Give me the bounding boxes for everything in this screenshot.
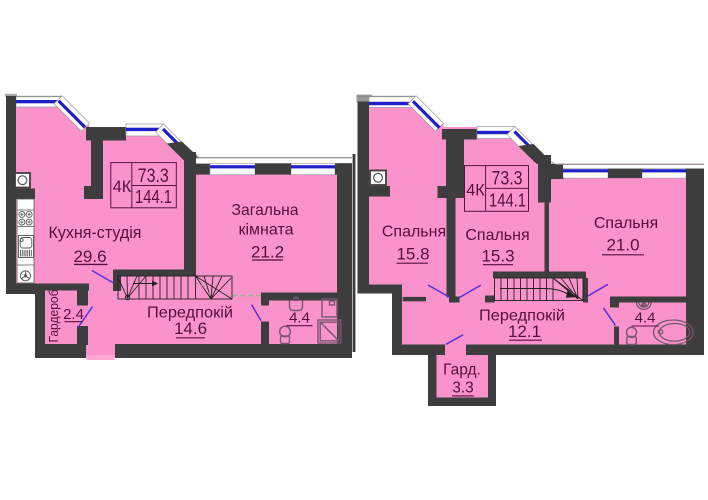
svg-text:73.3: 73.3: [138, 166, 169, 187]
svg-text:15.3: 15.3: [481, 246, 514, 265]
svg-text:4К: 4К: [113, 177, 132, 196]
svg-text:4.4: 4.4: [289, 310, 310, 327]
svg-text:Гард.: Гард.: [443, 362, 481, 379]
svg-text:Спальня: Спальня: [594, 215, 658, 232]
svg-text:12.1: 12.1: [508, 322, 541, 341]
svg-text:4К: 4К: [466, 181, 485, 200]
svg-text:15.8: 15.8: [396, 245, 429, 264]
svg-text:Загальна: Загальна: [232, 202, 299, 219]
svg-text:73.3: 73.3: [492, 169, 523, 190]
svg-text:144.1: 144.1: [135, 187, 172, 207]
svg-text:21.2: 21.2: [251, 243, 284, 262]
svg-text:29.6: 29.6: [73, 247, 106, 266]
svg-text:кімната: кімната: [239, 222, 294, 239]
svg-text:14.6: 14.6: [174, 319, 207, 338]
svg-text:4.4: 4.4: [635, 310, 656, 327]
svg-text:Спальня: Спальня: [465, 227, 529, 244]
svg-text:Гардероб: Гардероб: [46, 290, 61, 343]
svg-text:2.4: 2.4: [63, 306, 84, 323]
svg-text:Кухня-студія: Кухня-студія: [49, 223, 142, 242]
svg-text:144.1: 144.1: [489, 191, 526, 211]
svg-text:3.3: 3.3: [452, 380, 474, 397]
svg-text:Спальня: Спальня: [382, 224, 446, 241]
svg-text:21.0: 21.0: [606, 235, 639, 254]
